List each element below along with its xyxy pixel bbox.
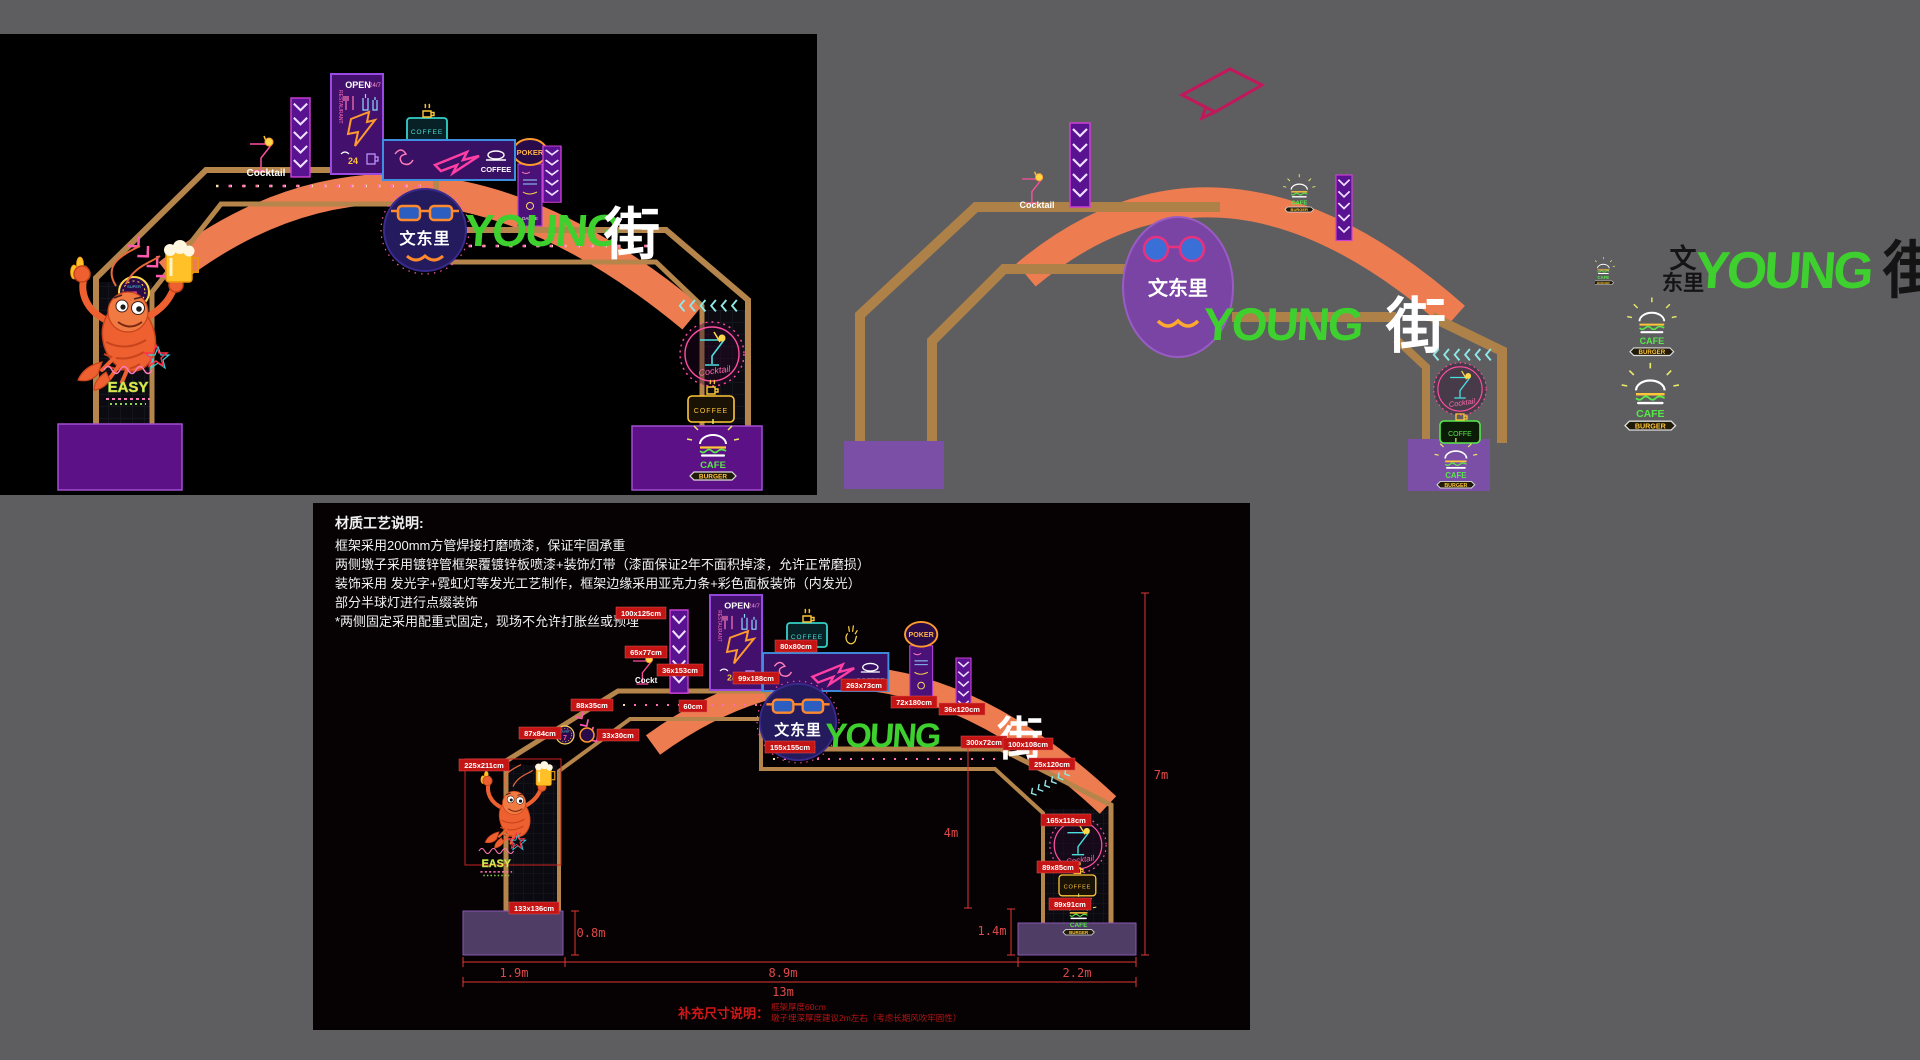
size-label: 88x35cm (571, 699, 613, 711)
svg-text:36x153cm: 36x153cm (662, 666, 698, 675)
chevron-banner (291, 98, 310, 177)
size-label: 300x72cm (961, 736, 1007, 748)
chevron-banner-2 (543, 146, 561, 202)
size-label: 263x73cm (841, 679, 887, 691)
martini-sign (1022, 172, 1043, 204)
supplement-line: 墩子埋深厚度建议2m左右（考虑长期风吹牢固性） (771, 1013, 961, 1023)
open-poster (331, 74, 383, 174)
size-label: 65x77cm (625, 646, 667, 658)
poker-sign (905, 622, 937, 705)
logo-detail: 文 东里 YOUNG 街 (1595, 230, 1920, 480)
cocktail-partial-label: Cockt (635, 676, 658, 685)
dimension-drawing: Cockt YOUNG 街 1.9m 8.9m 2.2m 13m 0 (313, 503, 1250, 1030)
size-label: 100x125cm (616, 607, 666, 619)
size-label: 36x120cm (939, 703, 985, 715)
svg-text:65x77cm: 65x77cm (630, 648, 662, 657)
dim-right-base: 2.2m (1063, 966, 1092, 980)
svg-text:60cm: 60cm (683, 702, 703, 711)
dim-total-height: 7m (1154, 768, 1168, 782)
size-label: 80x80cm (775, 640, 817, 652)
svg-text:80x80cm: 80x80cm (780, 642, 812, 651)
dim-clear-height: 4m (944, 826, 958, 840)
svg-text:25x120cm: 25x120cm (1034, 760, 1070, 769)
martini-sign (250, 136, 273, 171)
supplement-title: 补充尺寸说明： (677, 1006, 769, 1021)
dim-left-base: 1.9m (500, 966, 529, 980)
cocktail-circle-sign (1434, 363, 1486, 415)
brand-logo: 文 东里 YOUNG 街 (1662, 237, 1920, 306)
flag-outline (1182, 69, 1262, 118)
young-text: YOUNG (823, 717, 941, 755)
size-label: 33x30cm (597, 729, 639, 741)
svg-text:100x125cm: 100x125cm (621, 609, 661, 618)
svg-text:COFFE: COFFE (1448, 431, 1472, 438)
chevron-banner (670, 610, 688, 693)
logo-young: YOUNG (1693, 242, 1873, 300)
logo-wen: 文 (1670, 243, 1698, 274)
svg-text:133x136cm: 133x136cm (514, 904, 554, 913)
front-view-art: RESTAURANT OPEN 24/7 24 COFFEE (0, 34, 817, 495)
svg-text:100x108cm: 100x108cm (1008, 740, 1048, 749)
burger-mini (1595, 257, 1615, 285)
round-sign (580, 728, 594, 742)
street-text: 街 (603, 203, 660, 266)
dim-left-plinth: 0.8m (577, 926, 606, 940)
coffee-arc-sign (407, 104, 447, 142)
svg-text:89x91cm: 89x91cm (1054, 900, 1086, 909)
size-label: 100x108cm (1003, 738, 1053, 750)
svg-text:155x155cm: 155x155cm (770, 743, 810, 752)
cafe-burger-detail-2 (1622, 363, 1679, 430)
peace-hand (846, 625, 857, 643)
size-label: 133x136cm (509, 902, 559, 914)
svg-text:89x85cm: 89x85cm (1042, 863, 1074, 872)
size-label: 60cm (679, 700, 707, 712)
svg-text:165x118cm: 165x118cm (1046, 816, 1086, 825)
size-label: 87x84cm (519, 727, 561, 739)
size-label: 89x85cm (1037, 861, 1079, 873)
left-plinth (463, 911, 563, 955)
cafe-burger-detail-1 (1627, 298, 1676, 357)
dim-span: 8.9m (769, 966, 798, 980)
perspective-art: Cocktail 文东里 YOUNG 街 COFFE (830, 55, 1530, 495)
cocktail-label: Cocktail (1019, 200, 1054, 210)
perspective-view-panel: Cocktail 文东里 YOUNG 街 COFFE (830, 55, 1530, 495)
dim-right-plinth: 1.4m (978, 924, 1007, 938)
svg-text:87x84cm: 87x84cm (524, 729, 556, 738)
svg-text:225x211cm: 225x211cm (464, 761, 504, 770)
logo-detail-art: 文 东里 YOUNG 街 (1595, 230, 1920, 480)
supplement-line: 框架厚度60cm (771, 1002, 826, 1012)
svg-text:300x72cm: 300x72cm (966, 738, 1002, 747)
size-label: 155x155cm (765, 741, 815, 753)
svg-text:33x30cm: 33x30cm (602, 731, 634, 740)
young-text: YOUNG (1201, 298, 1363, 350)
size-label: 225x211cm (459, 759, 509, 771)
size-label: 99x188cm (733, 672, 779, 684)
size-label: 72x180cm (891, 696, 937, 708)
design-canvas: RESTAURANT OPEN 24/7 24 COFFEE (0, 0, 1920, 1060)
size-label: 36x153cm (657, 664, 703, 676)
chevron-banner-2 (1336, 175, 1352, 241)
supplement-note: 补充尺寸说明： 框架厚度60cm 墩子埋深厚度建议2m左右（考虑长期风吹牢固性） (677, 1002, 961, 1023)
shrimp (71, 240, 199, 390)
size-label: 165x118cm (1041, 814, 1091, 826)
cocktail-label: Cocktail (247, 168, 286, 179)
coffe-green-sign: COFFE (1440, 414, 1480, 443)
size-label: 25x120cm (1029, 758, 1075, 770)
dim-total-width: 13m (772, 985, 794, 999)
left-plinth (844, 441, 944, 489)
svg-text:36x120cm: 36x120cm (944, 705, 980, 714)
front-view-panel: RESTAURANT OPEN 24/7 24 COFFEE (0, 34, 817, 495)
svg-text:文东里: 文东里 (1148, 276, 1208, 300)
young-text: YOUNG (462, 205, 621, 256)
svg-text:99x188cm: 99x188cm (738, 674, 774, 683)
blue-coffee-panel (383, 140, 515, 180)
cocktail-circle-sign (680, 322, 744, 386)
left-plinth (58, 424, 182, 490)
size-label: 89x91cm (1049, 898, 1091, 910)
svg-text:263x73cm: 263x73cm (846, 681, 882, 690)
svg-text:88x35cm: 88x35cm (576, 701, 608, 710)
technical-drawing-panel: 材质工艺说明: 框架采用200mm方管焊接打磨喷漆，保证牢固承重 两侧墩子采用镀… (313, 503, 1250, 1030)
logo-street: 街 (1882, 237, 1920, 306)
svg-text:72x180cm: 72x180cm (896, 698, 932, 707)
chevron-banner (1070, 123, 1090, 207)
